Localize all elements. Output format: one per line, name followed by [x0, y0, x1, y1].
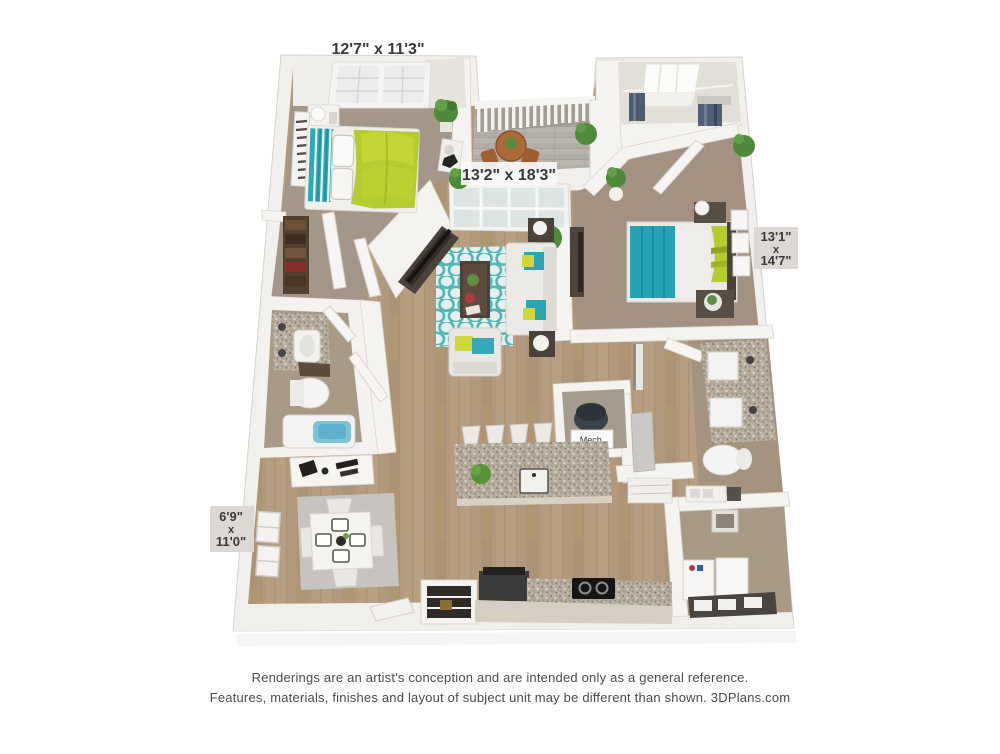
- svg-text:12'7" x 11'3": 12'7" x 11'3": [331, 41, 424, 58]
- svg-text:11'0": 11'0": [216, 534, 246, 549]
- svg-text:13'2" x 18'3": 13'2" x 18'3": [462, 167, 556, 184]
- svg-text:14'7": 14'7": [761, 253, 792, 268]
- svg-text:13'1": 13'1": [761, 229, 792, 244]
- svg-text:6'9": 6'9": [219, 509, 243, 524]
